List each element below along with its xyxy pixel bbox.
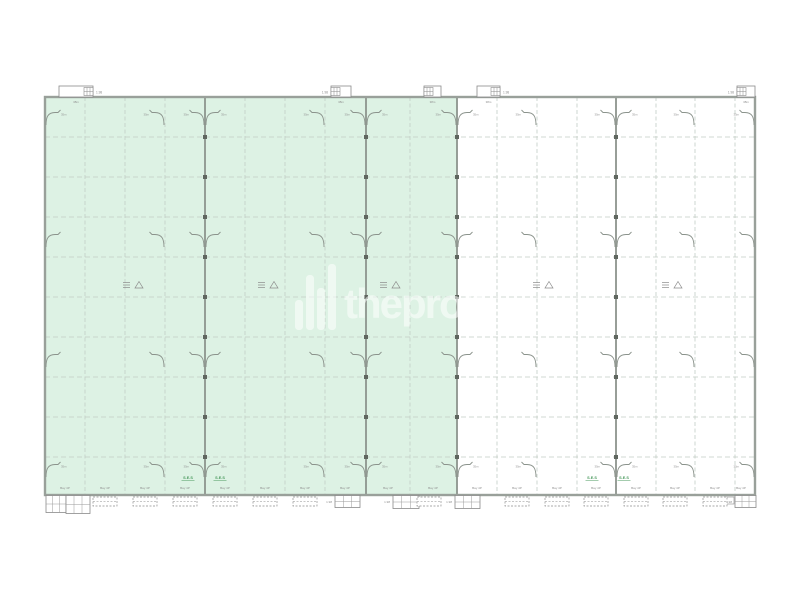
ses-label: S.E.S (215, 476, 225, 480)
drainage-label: 35m (221, 465, 227, 469)
drainage-label: 35m (632, 465, 638, 469)
block-dim-label: 1.98 (326, 500, 332, 504)
drainage-label: 35m (304, 113, 310, 117)
bay-label: Bay 4P (631, 486, 641, 490)
drainage-label: 35m (516, 113, 522, 117)
column-marker (364, 415, 368, 419)
bay-label: Bay 4P (710, 486, 720, 490)
block-under-label: 38m (743, 100, 749, 104)
warning-triangle-icon (674, 282, 682, 289)
block-dim-label: 1.98 (728, 91, 734, 95)
drainage-label: 35m (595, 465, 601, 469)
drainage-curve-icon (617, 232, 632, 247)
bay-label: Bay 4P (260, 486, 270, 490)
block-dim-label: 1.98 (96, 91, 102, 95)
drainage-curve-icon (601, 462, 616, 477)
column-marker (364, 375, 368, 379)
drainage-label: 35m (674, 465, 680, 469)
watermark-bar (306, 275, 314, 330)
ses-label: S.E.S (183, 476, 193, 480)
column-marker (455, 335, 459, 339)
drainage-curve-icon (522, 232, 537, 247)
drainage-label: 35m (345, 465, 351, 469)
bay-label: Bay 4P (300, 486, 310, 490)
drainage-curve-icon (522, 110, 537, 125)
bay-label: Bay 4P (100, 486, 110, 490)
drainage-curve-icon (522, 462, 537, 477)
bay-label: Bay 4P (383, 486, 393, 490)
column-marker (364, 175, 368, 179)
floorplan-canvas: 1.9838m1.9838m38m1.9838m1.9838m1.981.981… (0, 0, 800, 600)
column-marker (455, 215, 459, 219)
drainage-label: 35m (516, 465, 522, 469)
drainage-label: 35m (345, 113, 351, 117)
drainage-curve-icon (740, 352, 755, 367)
drainage-label: 35m (144, 113, 150, 117)
block-dim-label: 1.98 (446, 500, 452, 504)
column-marker (455, 375, 459, 379)
drainage-curve-icon (680, 462, 695, 477)
drainage-label: 35m (184, 113, 190, 117)
bay-label: Bay 4P (670, 486, 680, 490)
bay-label: Bay 4P (428, 486, 438, 490)
drainage-curve-icon (617, 352, 632, 367)
bay-label: Bay 4P (552, 486, 562, 490)
column-marker (614, 175, 618, 179)
block-under-label: 38m (486, 100, 492, 104)
column-marker (364, 135, 368, 139)
drainage-label: 35m (436, 465, 442, 469)
drainage-curve-icon (601, 232, 616, 247)
drainage-curve-icon (740, 232, 755, 247)
column-marker (455, 255, 459, 259)
column-marker (614, 255, 618, 259)
drainage-label: 35m (632, 113, 638, 117)
ses-label: S.E.S (587, 476, 597, 480)
bay-label: Bay 4P (140, 486, 150, 490)
drainage-label: 35m (473, 465, 479, 469)
watermark-bar (317, 288, 325, 330)
column-marker (614, 335, 618, 339)
drainage-curve-icon (680, 110, 695, 125)
bay-label: Bay 4P (180, 486, 190, 490)
drainage-label: 35m (734, 465, 740, 469)
column-marker (203, 255, 207, 259)
column-marker (614, 375, 618, 379)
drainage-curve-icon (680, 232, 695, 247)
drainage-label: 35m (144, 465, 150, 469)
ses-label: S.E.S (619, 476, 629, 480)
column-marker (455, 175, 459, 179)
drainage-label: 35m (734, 113, 740, 117)
column-marker (203, 295, 207, 299)
column-marker (455, 415, 459, 419)
drainage-curve-icon (601, 110, 616, 125)
block-dim-label: 1.98 (384, 500, 390, 504)
bay-label: Bay 4P (472, 486, 482, 490)
column-marker (614, 135, 618, 139)
drainage-curve-icon (458, 352, 473, 367)
drainage-label: 35m (382, 113, 388, 117)
column-marker (614, 455, 618, 459)
column-marker (203, 375, 207, 379)
floorplan-page: 1.9838m1.9838m38m1.9838m1.9838m1.981.981… (0, 0, 800, 600)
drainage-label: 35m (221, 113, 227, 117)
drainage-curve-icon (740, 462, 755, 477)
drainage-curve-icon (458, 232, 473, 247)
column-marker (364, 215, 368, 219)
column-marker (364, 455, 368, 459)
bay-label: Bay 4P (736, 486, 746, 490)
drainage-label: 35m (61, 465, 67, 469)
warning-triangle-icon (545, 282, 553, 289)
column-marker (203, 175, 207, 179)
column-marker (614, 295, 618, 299)
block-under-label: 38m (430, 100, 436, 104)
column-marker (614, 215, 618, 219)
bay-label: Bay 4P (512, 486, 522, 490)
watermark-bar (328, 264, 336, 330)
column-marker (203, 135, 207, 139)
drainage-curve-icon (740, 110, 755, 125)
drainage-label: 35m (382, 465, 388, 469)
column-marker (614, 415, 618, 419)
column-marker (203, 215, 207, 219)
bay-label: Bay 4P (60, 486, 70, 490)
bay-label: Bay 4P (591, 486, 601, 490)
drainage-label: 35m (595, 113, 601, 117)
column-marker (364, 255, 368, 259)
column-marker (455, 455, 459, 459)
bay-label: Bay 4P (220, 486, 230, 490)
drainage-curve-icon (458, 110, 473, 125)
bay-label: Bay 4P (340, 486, 350, 490)
drainage-curve-icon (680, 352, 695, 367)
drainage-label: 35m (304, 465, 310, 469)
block-under-label: 38m (73, 100, 79, 104)
block-dim-label: 1.98 (503, 91, 509, 95)
watermark-bar (295, 300, 303, 330)
drainage-label: 35m (674, 113, 680, 117)
drainage-curve-icon (617, 110, 632, 125)
column-marker (203, 455, 207, 459)
drainage-curve-icon (617, 462, 632, 477)
drainage-curve-icon (601, 352, 616, 367)
drainage-label: 35m (436, 113, 442, 117)
column-marker (203, 415, 207, 419)
block-under-label: 38m (338, 100, 344, 104)
column-marker (364, 335, 368, 339)
drainage-curve-icon (522, 352, 537, 367)
column-marker (203, 335, 207, 339)
column-marker (455, 135, 459, 139)
drainage-curve-icon (458, 462, 473, 477)
watermark-text: theprop (344, 280, 487, 327)
block-dim-label: 1.98 (322, 91, 328, 95)
drainage-label: 35m (184, 465, 190, 469)
drainage-label: 35m (61, 113, 67, 117)
drainage-label: 35m (473, 113, 479, 117)
